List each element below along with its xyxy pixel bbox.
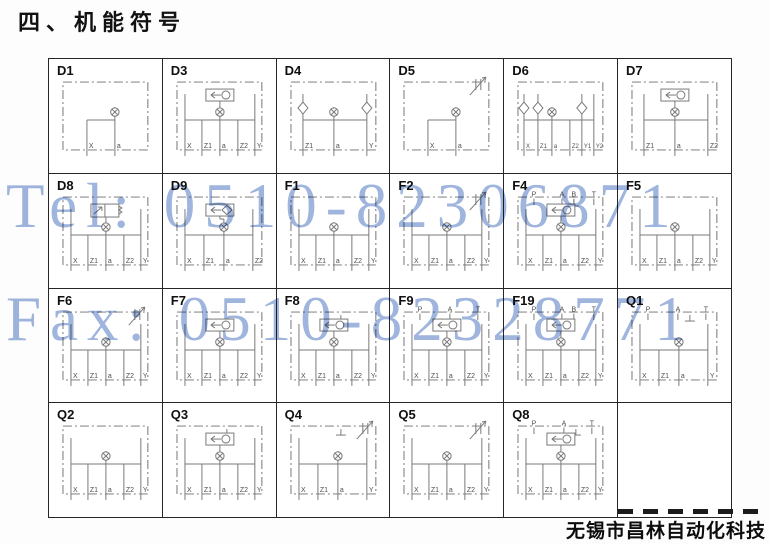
- svg-text:a: a: [449, 487, 453, 494]
- schematic-F9: PATXZ1aZ2Y: [390, 304, 503, 400]
- svg-text:Z1: Z1: [431, 258, 439, 265]
- schematic-Q2: XZ1aZ2Y: [49, 418, 162, 514]
- svg-text:a: a: [335, 258, 339, 265]
- empty-cell: [618, 403, 732, 518]
- svg-text:T: T: [592, 306, 597, 313]
- schematic-D1: Xa: [49, 74, 162, 170]
- svg-text:X: X: [526, 144, 530, 150]
- svg-text:X: X: [414, 373, 419, 380]
- svg-text:a: a: [677, 143, 681, 150]
- svg-text:Z2: Z2: [240, 487, 248, 494]
- svg-text:Y: Y: [257, 143, 262, 150]
- svg-text:a: a: [458, 143, 462, 150]
- svg-text:Z1: Z1: [90, 487, 98, 494]
- svg-text:T: T: [476, 306, 481, 313]
- svg-text:a: a: [677, 258, 681, 265]
- svg-text:X: X: [414, 258, 419, 265]
- svg-text:a: a: [339, 487, 343, 494]
- svg-text:Z2: Z2: [126, 258, 134, 265]
- svg-text:X: X: [528, 487, 533, 494]
- symbol-cell-F1: F1XZ1aZ2Y: [277, 174, 391, 289]
- svg-text:Y: Y: [257, 487, 262, 494]
- svg-text:B: B: [572, 191, 577, 198]
- schematic-F7: XZ1aZ2Y: [163, 304, 276, 400]
- svg-text:Z2: Z2: [572, 144, 580, 150]
- company-name: 无锡市昌林自动化科技: [566, 516, 766, 543]
- svg-text:Z2: Z2: [467, 373, 475, 380]
- svg-text:Z1: Z1: [305, 143, 313, 150]
- symbol-cell-F19: F19PABTXZ1aZ2Y: [504, 289, 618, 404]
- svg-text:X: X: [430, 143, 435, 150]
- schematic-D5: Xa: [390, 74, 503, 170]
- svg-text:X: X: [73, 487, 78, 494]
- svg-text:a: a: [563, 373, 567, 380]
- svg-text:Z1: Z1: [431, 487, 439, 494]
- svg-text:X: X: [73, 373, 78, 380]
- svg-text:X: X: [187, 373, 192, 380]
- svg-text:Z1: Z1: [90, 258, 98, 265]
- svg-text:Y: Y: [370, 258, 375, 265]
- svg-text:a: a: [554, 144, 558, 150]
- svg-text:Y: Y: [712, 258, 717, 265]
- schematic-Q4: XZ1aY: [277, 418, 390, 514]
- svg-text:Z1: Z1: [318, 258, 326, 265]
- svg-text:P: P: [646, 306, 651, 313]
- svg-text:P: P: [532, 306, 537, 313]
- schematic-F8: XZ1aZ2Y: [277, 304, 390, 400]
- svg-text:X: X: [642, 258, 647, 265]
- svg-text:a: a: [222, 373, 226, 380]
- svg-text:A: A: [448, 306, 453, 313]
- symbol-cell-D1: D1Xa: [49, 59, 163, 174]
- symbol-cell-Q4: Q4XZ1aY: [277, 403, 391, 518]
- svg-text:Z1: Z1: [545, 373, 553, 380]
- svg-text:a: a: [335, 373, 339, 380]
- svg-text:Y: Y: [368, 143, 373, 150]
- svg-text:a: a: [108, 373, 112, 380]
- svg-text:X: X: [301, 373, 306, 380]
- svg-text:X: X: [528, 373, 533, 380]
- function-symbol-table: D1XaD3XZ1aZ2YD4Z1aYD5XaD6XZ1aZ2Y1Y2D7Z1a…: [48, 58, 732, 518]
- svg-text:Z2: Z2: [353, 258, 361, 265]
- symbol-cell-D6: D6XZ1aZ2Y1Y2: [504, 59, 618, 174]
- svg-text:Y1: Y1: [584, 144, 592, 150]
- symbol-cell-D3: D3XZ1aZ2Y: [163, 59, 277, 174]
- svg-text:Z2: Z2: [467, 258, 475, 265]
- schematic-D8: XZ1aZ2Y: [49, 189, 162, 285]
- svg-text:Y: Y: [484, 258, 489, 265]
- schematic-D6: XZ1aZ2Y1Y2: [504, 74, 617, 170]
- svg-text:T: T: [592, 191, 597, 198]
- svg-text:Z2: Z2: [710, 143, 718, 150]
- symbol-cell-F8: F8XZ1aZ2Y: [277, 289, 391, 404]
- symbol-cell-F4: F4PABTXZ1aZ2Y: [504, 174, 618, 289]
- svg-text:Z1: Z1: [661, 373, 669, 380]
- symbol-cell-Q5: Q5XZ1aZ2Y: [390, 403, 504, 518]
- svg-text:Y: Y: [598, 258, 603, 265]
- svg-text:P: P: [418, 306, 423, 313]
- svg-text:Y: Y: [484, 487, 489, 494]
- schematic-F2: XZ1aZ2Y: [390, 189, 503, 285]
- svg-text:Z1: Z1: [204, 487, 212, 494]
- svg-text:a: a: [108, 487, 112, 494]
- svg-text:Z2: Z2: [581, 487, 589, 494]
- symbol-cell-F6: F6XZ1aZ2Y: [49, 289, 163, 404]
- svg-text:A: A: [560, 191, 565, 198]
- svg-text:Z2: Z2: [467, 487, 475, 494]
- svg-text:X: X: [187, 258, 192, 265]
- svg-text:X: X: [73, 258, 78, 265]
- svg-text:Y: Y: [598, 487, 603, 494]
- symbol-cell-D5: D5Xa: [390, 59, 504, 174]
- svg-text:Z1: Z1: [540, 144, 548, 150]
- svg-text:A: A: [676, 306, 681, 313]
- schematic-F5: XZ1aZ2Y: [618, 189, 731, 285]
- svg-text:Z2: Z2: [240, 143, 248, 150]
- document-page: 四、机能符号 D1XaD3XZ1aZ2YD4Z1aYD5XaD6XZ1aZ2Y1…: [0, 0, 769, 545]
- svg-text:Y: Y: [598, 373, 603, 380]
- svg-text:Z1: Z1: [90, 373, 98, 380]
- schematic-D7: Z1aZ2: [618, 74, 731, 170]
- svg-text:Y: Y: [484, 373, 489, 380]
- svg-text:Y: Y: [710, 373, 715, 380]
- svg-text:Z2: Z2: [126, 373, 134, 380]
- svg-text:X: X: [414, 487, 419, 494]
- schematic-Q3: XZ1aZ2Y: [163, 418, 276, 514]
- schematic-F1: XZ1aZ2Y: [277, 189, 390, 285]
- svg-text:X: X: [89, 143, 94, 150]
- svg-text:a: a: [117, 143, 121, 150]
- svg-text:A: A: [562, 421, 567, 428]
- svg-text:B: B: [572, 306, 577, 313]
- schematic-Q5: XZ1aZ2Y: [390, 418, 503, 514]
- symbol-cell-F2: F2XZ1aZ2Y: [390, 174, 504, 289]
- svg-text:Y: Y: [143, 487, 148, 494]
- svg-text:Y2: Y2: [596, 144, 604, 150]
- svg-text:Z1: Z1: [320, 487, 328, 494]
- page-title: 四、机能符号: [18, 5, 186, 37]
- svg-text:Z2: Z2: [581, 373, 589, 380]
- symbol-cell-Q8: Q8PATXZ1aZ2Y: [504, 403, 618, 518]
- svg-text:X: X: [301, 258, 306, 265]
- schematic-Q8: PATXZ1aZ2Y: [504, 418, 617, 514]
- svg-text:Z1: Z1: [545, 487, 553, 494]
- svg-text:Y: Y: [143, 373, 148, 380]
- symbol-cell-Q3: Q3XZ1aZ2Y: [163, 403, 277, 518]
- svg-text:X: X: [528, 258, 533, 265]
- svg-text:P: P: [532, 191, 537, 198]
- symbol-cell-D4: D4Z1aY: [277, 59, 391, 174]
- svg-text:Z2: Z2: [255, 258, 263, 265]
- svg-text:Z2: Z2: [581, 258, 589, 265]
- svg-text:a: a: [449, 258, 453, 265]
- cropped-print-artifact: [618, 509, 766, 514]
- svg-text:X: X: [187, 487, 192, 494]
- schematic-Q1: PATXZ1aY: [618, 304, 731, 400]
- svg-text:Z1: Z1: [206, 258, 214, 265]
- svg-text:Z1: Z1: [545, 258, 553, 265]
- svg-text:Z2: Z2: [240, 373, 248, 380]
- schematic-F4: PABTXZ1aZ2Y: [504, 189, 617, 285]
- svg-text:X: X: [187, 143, 192, 150]
- symbol-cell-Q2: Q2XZ1aZ2Y: [49, 403, 163, 518]
- symbol-cell-F7: F7XZ1aZ2Y: [163, 289, 277, 404]
- svg-text:Z1: Z1: [431, 373, 439, 380]
- svg-text:Y: Y: [257, 373, 262, 380]
- svg-text:a: a: [108, 258, 112, 265]
- svg-text:a: a: [222, 143, 226, 150]
- symbol-cell-D8: D8XZ1aZ2Y: [49, 174, 163, 289]
- symbol-cell-D7: D7Z1aZ2: [618, 59, 732, 174]
- svg-text:Y: Y: [143, 258, 148, 265]
- svg-text:Z1: Z1: [204, 143, 212, 150]
- svg-text:Z1: Z1: [204, 373, 212, 380]
- svg-text:a: a: [335, 143, 339, 150]
- schematic-F19: PABTXZ1aZ2Y: [504, 304, 617, 400]
- svg-text:A: A: [560, 306, 565, 313]
- svg-text:X: X: [642, 373, 647, 380]
- schematic-D9: XZ1aZ2: [163, 189, 276, 285]
- svg-text:Z1: Z1: [318, 373, 326, 380]
- svg-text:a: a: [226, 258, 230, 265]
- symbol-cell-F5: F5XZ1aZ2Y: [618, 174, 732, 289]
- schematic-D3: XZ1aZ2Y: [163, 74, 276, 170]
- svg-text:Z2: Z2: [353, 373, 361, 380]
- schematic-D4: Z1aY: [277, 74, 390, 170]
- symbol-cell-F9: F9PATXZ1aZ2Y: [390, 289, 504, 404]
- svg-text:P: P: [532, 421, 537, 428]
- svg-text:Y: Y: [368, 487, 373, 494]
- svg-text:Z1: Z1: [646, 143, 654, 150]
- svg-text:a: a: [222, 487, 226, 494]
- svg-text:Z1: Z1: [659, 258, 667, 265]
- svg-text:a: a: [681, 373, 685, 380]
- svg-text:Z2: Z2: [695, 258, 703, 265]
- svg-text:a: a: [563, 258, 567, 265]
- schematic-F6: XZ1aZ2Y: [49, 304, 162, 400]
- svg-text:T: T: [590, 421, 595, 428]
- svg-text:Y: Y: [370, 373, 375, 380]
- svg-text:a: a: [563, 487, 567, 494]
- svg-text:X: X: [301, 487, 306, 494]
- symbol-cell-D9: D9XZ1aZ2: [163, 174, 277, 289]
- symbol-cell-Q1: Q1PATXZ1aY: [618, 289, 732, 404]
- svg-text:a: a: [449, 373, 453, 380]
- svg-text:T: T: [704, 306, 709, 313]
- svg-text:Z2: Z2: [126, 487, 134, 494]
